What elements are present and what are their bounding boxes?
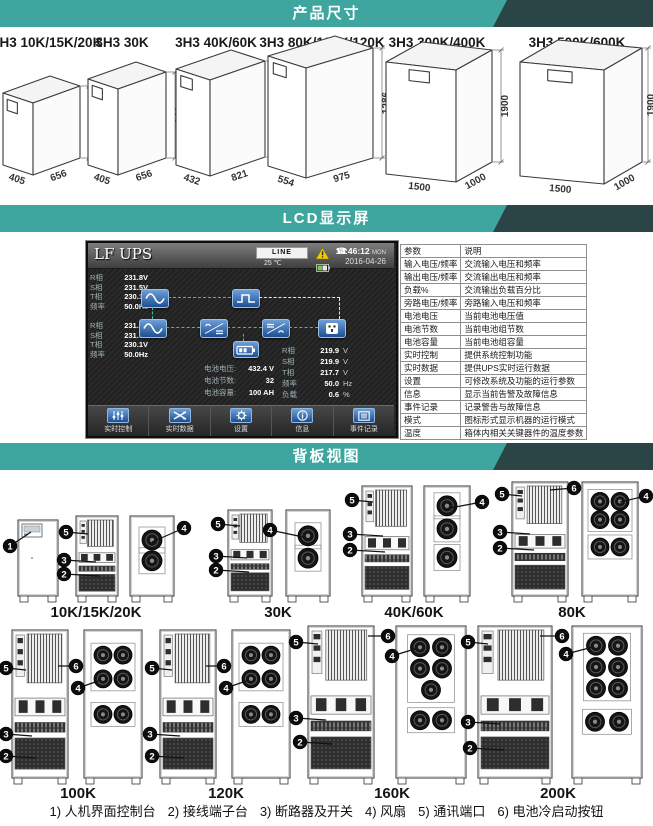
desc-cell: 显示当前告警及故障信息: [461, 388, 587, 401]
toolbar-button-icon: [107, 408, 129, 423]
dimension-boxes: 4056568174056569414328211159554975128615…: [0, 27, 653, 205]
dimension-box: 5549751286: [268, 36, 392, 190]
table-row: 负载%交流输出负载百分比: [401, 284, 587, 297]
rear-group-40k-60k: 532440K/60K: [343, 486, 489, 621]
depth-dimension: 656: [49, 168, 69, 184]
output-label: R相: [282, 345, 306, 356]
lcd-header-bar: LF UPS LINE 25 ℃ ☎ 14:46:12 MON 2016-04-…: [88, 243, 394, 269]
time-text: 14:46:12: [336, 246, 370, 256]
ups-unit-rear: [12, 630, 68, 784]
param-cell: 输出电压/频率: [401, 271, 461, 284]
toolbar-button-label: 实时数据: [166, 424, 194, 434]
ac-input-source-icon: [139, 319, 167, 338]
callout-number: 4: [75, 683, 81, 694]
battery-value: 32: [236, 375, 274, 387]
temperature-readout: 25 ℃: [264, 259, 282, 267]
date-readout: 2016-04-26: [345, 257, 386, 266]
rear-group-30k: 532430K: [209, 510, 330, 621]
section-header-rear: 背板视图: [0, 443, 653, 470]
callout-number: 6: [571, 483, 576, 494]
battery-readout: 电池电压:432.4 V电池节数:32电池容量:100 AH: [204, 363, 274, 399]
bypass-input-row: 频率50.0Hz: [90, 302, 148, 312]
phase-label: S相: [90, 331, 114, 341]
output-row: T相217.7V: [282, 367, 358, 378]
callout-number: 2: [3, 751, 8, 762]
bypass-input-row: S相231.5V: [90, 283, 148, 293]
battery-status-icon: [316, 259, 330, 277]
width-dimension: 405: [7, 172, 27, 188]
callout-number: 5: [215, 519, 221, 530]
line-status-badge: LINE: [256, 247, 308, 259]
rear-group-10k-15k-20k: 1532410K/15K/20K: [3, 516, 191, 621]
rear-group-80k: 6532480K: [493, 481, 653, 621]
output-unit: V: [339, 345, 358, 356]
rear-group-label: 30K: [264, 604, 292, 621]
section-header-dimensions: 产品尺寸: [0, 0, 653, 27]
output-value: 0.6: [306, 389, 339, 400]
ups-unit-rear: [76, 516, 118, 602]
desc-cell: 记录警告与故障信息: [461, 401, 587, 414]
output-value: 50.0: [306, 378, 339, 389]
battery-value: 100 AH: [236, 387, 274, 399]
callout-number: 3: [3, 729, 8, 740]
width-dimension: 554: [276, 174, 296, 190]
toolbar-button-label: 事件记录: [350, 424, 378, 434]
callout-number: 4: [223, 683, 229, 694]
output-unit: V: [339, 356, 358, 367]
param-cell: 实时控制: [401, 349, 461, 362]
phase-label: 频率: [90, 302, 114, 312]
legend-item: 6) 电池冷启动按钮: [497, 804, 603, 819]
flow-line: [243, 334, 244, 341]
rear-group-label: 160K: [374, 785, 410, 802]
phase-value: 50.0Hz: [114, 350, 148, 360]
width-dimension: 1500: [408, 181, 432, 195]
callout-number: 4: [479, 497, 485, 508]
callout-number: 2: [297, 737, 302, 748]
ups-unit-rear: [362, 486, 412, 602]
mains-input-row: T相230.1V: [90, 340, 148, 350]
output-row: 频率50.0Hz: [282, 378, 358, 389]
height-dimension: 1900: [646, 93, 653, 116]
table-row: 实时控制提供系统控制功能: [401, 349, 587, 362]
callout-number: 6: [559, 631, 564, 642]
param-cell: 负载%: [401, 284, 461, 297]
callout-number: 4: [643, 491, 649, 502]
desc-cell: 交流输入电压和频率: [461, 258, 587, 271]
rear-group-label: 80K: [558, 604, 586, 621]
dimension-box: 150010001900: [520, 40, 653, 196]
phase-value: 231.8V: [114, 273, 148, 283]
callout-number: 2: [497, 543, 502, 554]
desc-cell: 当前电池电压值: [461, 310, 587, 323]
phase-label: T相: [90, 292, 114, 302]
output-unit: %: [339, 389, 358, 400]
ups-unit-rear: [228, 510, 272, 602]
param-cell: 设置: [401, 375, 461, 388]
ups-unit-rear: [512, 482, 568, 602]
output-value: 217.7: [306, 367, 339, 378]
desc-cell: 交流输出电压和频率: [461, 271, 587, 284]
dimension-box: 405656817: [3, 76, 99, 188]
callout-number: 5: [63, 527, 69, 538]
param-cell: 事件记录: [401, 401, 461, 414]
static-switch-icon: [232, 289, 260, 308]
battery-row: 电池电压:432.4 V: [204, 363, 274, 375]
desc-cell: 说明: [461, 245, 587, 258]
inverter-icon: [262, 319, 290, 338]
section-header-lcd: LCD显示屏: [0, 205, 653, 232]
param-cell: 温度: [401, 427, 461, 440]
output-row: S相219.9V: [282, 356, 358, 367]
output-row: R相219.9V: [282, 345, 358, 356]
param-cell: 电池电压: [401, 310, 461, 323]
battery-row: 电池容量:100 AH: [204, 387, 274, 399]
battery-label: 电池节数:: [204, 375, 236, 387]
rear-group-120k: 56324120K: [143, 630, 290, 802]
param-cell: 电池节数: [401, 323, 461, 336]
rear-group-100k: 56324100K: [0, 630, 142, 802]
phase-label: R相: [90, 321, 114, 331]
legend-item: 2) 接线端子台: [168, 804, 248, 819]
section-title: 产品尺寸: [0, 0, 653, 27]
callout-number: 2: [347, 545, 352, 556]
ups-unit-front: [18, 520, 58, 602]
flow-line: [339, 298, 340, 319]
legend-item: 4) 风扇: [365, 804, 406, 819]
table-row: 旁路电压/频率旁路输入电压和频率: [401, 297, 587, 310]
rear-group-label: 40K/60K: [384, 604, 443, 621]
callout-number: 5: [3, 663, 9, 674]
param-cell: 信息: [401, 388, 461, 401]
clock-readout: 14:46:12 MON: [336, 246, 386, 256]
legend-item: 5) 通讯端口: [418, 804, 485, 819]
desc-cell: 交流输出负载百分比: [461, 284, 587, 297]
callout-number: 2: [213, 565, 218, 576]
battery-label: 电池容量:: [204, 387, 236, 399]
lcd-title: LF UPS: [94, 245, 152, 263]
ups-unit-rear: [160, 630, 216, 784]
callout-number: 5: [349, 495, 355, 506]
phase-label: T相: [90, 340, 114, 350]
output-label: T相: [282, 367, 306, 378]
desc-cell: 提供系统控制功能: [461, 349, 587, 362]
callout-number: 3: [293, 713, 298, 724]
callout-number: 4: [181, 523, 187, 534]
callout-number: 3: [61, 555, 66, 566]
section-title: LCD显示屏: [0, 205, 653, 232]
width-dimension: 405: [92, 172, 112, 188]
callout-number: 3: [213, 551, 218, 562]
output-readout: R相219.9VS相219.9VT相217.7V频率50.0Hz负载0.6%: [282, 345, 358, 400]
toolbar-button-label: 信息: [295, 424, 309, 434]
lcd-toolbar-button-4[interactable]: 信息: [271, 406, 332, 436]
flow-line: [289, 327, 318, 328]
param-cell: 旁路电压/频率: [401, 297, 461, 310]
callout-number: 3: [465, 717, 470, 728]
toolbar-button-label: 实时控制: [104, 424, 132, 434]
callout-number: 3: [147, 729, 152, 740]
table-row: 电池容量当前电池组容量: [401, 336, 587, 349]
phase-label: 频率: [90, 350, 114, 360]
table-row: 事件记录记录警告与故障信息: [401, 401, 587, 414]
callout-number: 3: [497, 527, 502, 538]
desc-cell: 箱体内相关关键器件的温度参数: [461, 427, 587, 440]
lcd-parameter-table: 参数说明输入电压/频率交流输入电压和频率输出电压/频率交流输出电压和频率负载%交…: [400, 244, 587, 440]
section-title: 背板视图: [0, 443, 653, 470]
rear-group-200k: 56324200K: [461, 626, 642, 802]
dimension-box: 405656941: [88, 62, 185, 188]
ups-unit-rear: [308, 626, 374, 784]
ups-unit-fans3: [424, 486, 470, 602]
callout-number: 3: [347, 529, 352, 540]
ups-unit-rear: [478, 626, 552, 784]
ups-unit-fans7: [396, 626, 466, 784]
battery-value: 432.4 V: [236, 363, 274, 375]
callout-number: 6: [221, 661, 226, 672]
battery-label: 电池电压:: [204, 363, 236, 375]
lcd-screen: LF UPS LINE 25 ℃ ☎ 14:46:12 MON 2016-04-…: [85, 240, 399, 439]
width-dimension: 432: [182, 172, 202, 188]
param-cell: 参数: [401, 245, 461, 258]
ups-unit-fans6: [84, 630, 142, 784]
bypass-input-row: R相231.8V: [90, 273, 148, 283]
ac-bypass-source-icon: [141, 289, 169, 308]
rear-view-diagrams: 1532410K/15K/20K532430K532440K/60K653248…: [0, 470, 653, 802]
rear-group-label: 200K: [540, 785, 576, 802]
table-row: 电池节数当前电池组节数: [401, 323, 587, 336]
callout-number: 2: [61, 569, 66, 580]
output-unit: V: [339, 367, 358, 378]
battery-icon: [233, 341, 259, 358]
callout-number: 1: [7, 541, 13, 552]
callout-number: 6: [385, 631, 390, 642]
output-unit: Hz: [339, 378, 358, 389]
output-value: 219.9: [306, 345, 339, 356]
ups-unit-fans6: [232, 630, 290, 784]
callout-number: 6: [73, 661, 78, 672]
lcd-toolbar-button-1[interactable]: 实时控制: [88, 406, 148, 436]
table-row: 输入电压/频率交流输入电压和频率: [401, 258, 587, 271]
rear-group-label: 100K: [60, 785, 96, 802]
desc-cell: 可修改系统及功能的运行参数: [461, 375, 587, 388]
callout-number: 4: [389, 651, 395, 662]
weekday-text: MON: [372, 250, 386, 256]
callout-number: 5: [499, 489, 505, 500]
toolbar-button-icon: [230, 408, 252, 423]
param-cell: 模式: [401, 414, 461, 427]
param-cell: 实时数据: [401, 362, 461, 375]
desc-cell: 图标形式显示机器的运行模式: [461, 414, 587, 427]
flow-line: [152, 307, 153, 319]
output-label: 负载: [282, 389, 306, 400]
param-cell: 电池容量: [401, 336, 461, 349]
output-row: 负载0.6%: [282, 389, 358, 400]
rear-group-160k: 56324160K: [289, 626, 466, 802]
table-row: 温度箱体内相关关键器件的温度参数: [401, 427, 587, 440]
output-label: S相: [282, 356, 306, 367]
bypass-input-row: T相230.1V: [90, 292, 148, 302]
lcd-toolbar: 实时控制实时数据设置信息事件记录: [88, 405, 394, 436]
toolbar-button-label: 设置: [234, 424, 248, 434]
ups-unit-fans2: [286, 510, 330, 602]
toolbar-button-icon: [169, 408, 191, 423]
lcd-toolbar-button-5[interactable]: 事件记录: [333, 406, 394, 436]
toolbar-button-icon: [353, 408, 375, 423]
desc-cell: 当前电池组节数: [461, 323, 587, 336]
dimension-box: 150010001900: [386, 42, 511, 194]
desc-cell: 当前电池组容量: [461, 336, 587, 349]
toolbar-button-icon: [291, 408, 313, 423]
legend-item: 3) 断路器及开关: [260, 804, 353, 819]
legend-item: 1) 人机界面控制台: [49, 804, 155, 819]
phase-label: R相: [90, 273, 114, 283]
lcd-toolbar-button-2[interactable]: 实时数据: [148, 406, 209, 436]
callout-number: 4: [267, 525, 273, 536]
table-row: 电池电压当前电池电压值: [401, 310, 587, 323]
callout-number: 4: [563, 649, 569, 660]
flow-line: [227, 327, 262, 328]
table-row: 设置可修改系统及功能的运行参数: [401, 375, 587, 388]
page: 产品尺寸 3H3 10K/15K/20K3H3 30K3H3 40K/60K3H…: [0, 0, 653, 826]
flow-line: [259, 297, 340, 298]
desc-cell: 旁路输入电压和频率: [461, 297, 587, 310]
depth-dimension: 975: [332, 170, 352, 185]
callout-legend: 1) 人机界面控制台2) 接线端子台3) 断路器及开关4) 风扇5) 通讯端口6…: [0, 801, 653, 820]
table-row: 信息显示当前告警及故障信息: [401, 388, 587, 401]
callout-number: 5: [293, 637, 299, 648]
mains-input-row: 频率50.0Hz: [90, 350, 148, 360]
ups-unit-fans2: [130, 516, 174, 602]
width-dimension: 1500: [549, 183, 573, 196]
table-header-row: 参数说明: [401, 245, 587, 258]
callout-number: 5: [149, 663, 155, 674]
callout-number: 2: [467, 743, 472, 754]
phase-value: 230.1V: [114, 340, 148, 350]
desc-cell: 提供UPS实时运行数据: [461, 362, 587, 375]
param-cell: 输入电压/频率: [401, 258, 461, 271]
phase-label: S相: [90, 283, 114, 293]
output-outlet-icon: [318, 319, 346, 338]
table-row: 实时数据提供UPS实时运行数据: [401, 362, 587, 375]
bypass-input-readout: R相231.8VS相231.5VT相230.1V频率50.0Hz: [90, 273, 148, 311]
table-row: 模式图标形式显示机器的运行模式: [401, 414, 587, 427]
depth-dimension: 656: [134, 168, 154, 184]
flow-line: [166, 327, 200, 328]
flow-line: [168, 297, 231, 298]
callout-number: 2: [149, 751, 154, 762]
rear-group-label: 10K/15K/20K: [51, 604, 142, 621]
rectifier-icon: [200, 319, 228, 338]
output-value: 219.9: [306, 356, 339, 367]
lcd-toolbar-button-3[interactable]: 设置: [210, 406, 271, 436]
rear-group-label: 120K: [208, 785, 244, 802]
height-dimension: 1900: [500, 94, 511, 117]
depth-dimension: 821: [230, 168, 250, 184]
callout-number: 5: [465, 637, 471, 648]
output-label: 频率: [282, 378, 306, 389]
battery-row: 电池节数:32: [204, 375, 274, 387]
table-row: 输出电压/频率交流输出电压和频率: [401, 271, 587, 284]
